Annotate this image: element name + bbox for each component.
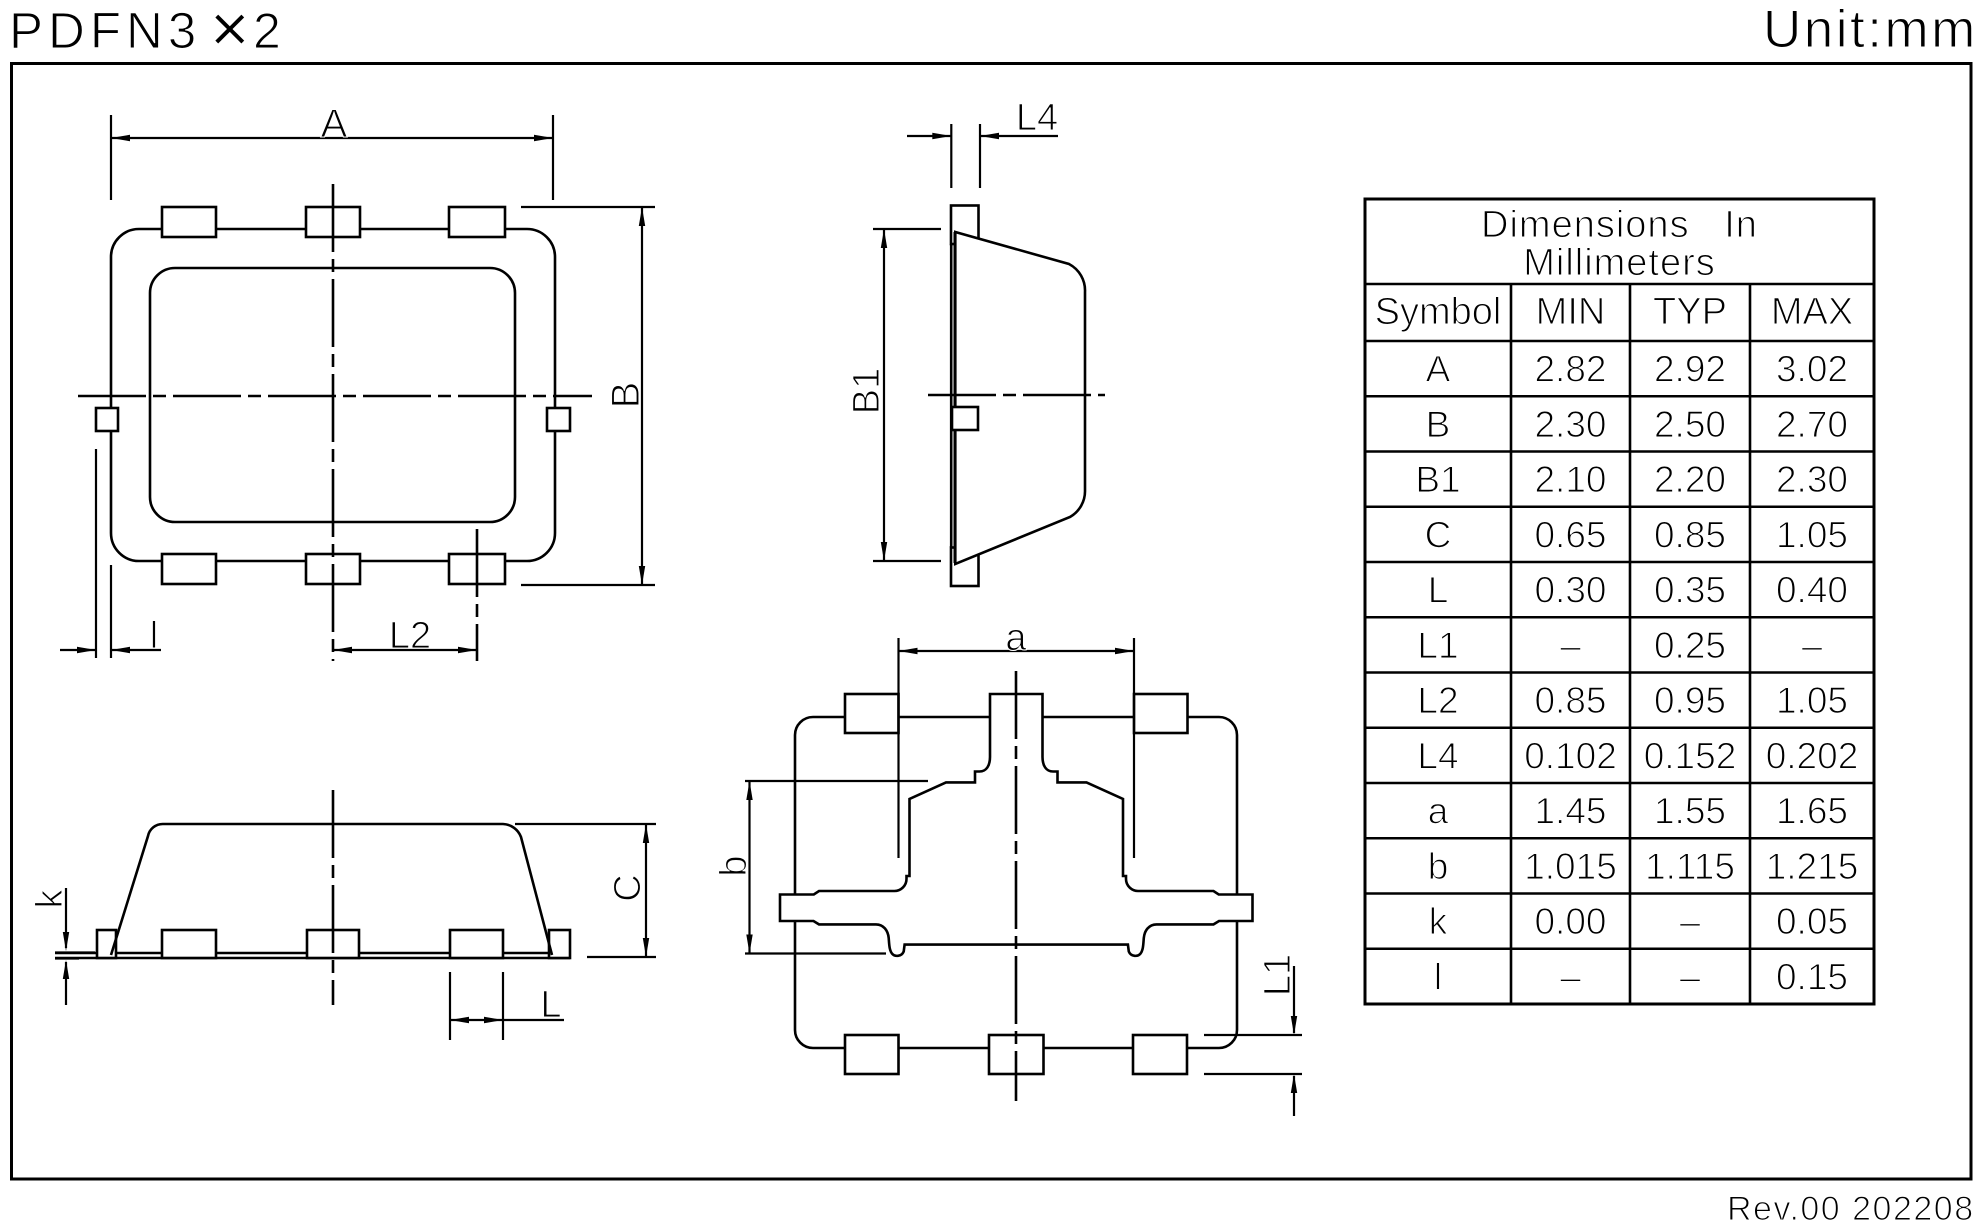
svg-text:0.202: 0.202	[1766, 735, 1859, 776]
svg-text:C: C	[607, 874, 649, 901]
svg-text:0.85: 0.85	[1654, 514, 1726, 555]
svg-text:k: k	[1429, 901, 1448, 942]
svg-text:l: l	[1434, 956, 1442, 997]
svg-text:C: C	[1425, 514, 1452, 555]
svg-text:L1: L1	[1257, 954, 1299, 996]
svg-text:1.05: 1.05	[1776, 514, 1848, 555]
svg-text:Unit:mm: Unit:mm	[1763, 0, 1978, 59]
svg-text:0.25: 0.25	[1654, 625, 1726, 666]
svg-text:L: L	[1428, 570, 1449, 611]
svg-text:1.45: 1.45	[1534, 791, 1606, 832]
svg-text:b: b	[713, 855, 755, 876]
svg-text:2.20: 2.20	[1654, 459, 1726, 500]
svg-text:0.35: 0.35	[1654, 570, 1726, 611]
svg-text:2.70: 2.70	[1776, 404, 1848, 445]
svg-text:1.015: 1.015	[1524, 846, 1617, 887]
svg-text:B: B	[604, 382, 648, 409]
svg-text:–: –	[1802, 625, 1823, 666]
svg-text:0.00: 0.00	[1534, 901, 1606, 942]
svg-text:L2: L2	[1417, 680, 1458, 721]
svg-text:b: b	[1428, 846, 1449, 887]
svg-text:L: L	[540, 984, 561, 1026]
svg-text:MIN: MIN	[1536, 291, 1606, 333]
svg-text:B1: B1	[846, 368, 888, 414]
svg-text:2.30: 2.30	[1776, 459, 1848, 500]
svg-text:0.152: 0.152	[1644, 735, 1737, 776]
svg-text:Millimeters: Millimeters	[1523, 242, 1716, 284]
svg-text:0.30: 0.30	[1534, 570, 1606, 611]
svg-text:L4: L4	[1016, 97, 1058, 139]
svg-text:0.102: 0.102	[1524, 735, 1617, 776]
svg-text:✕: ✕	[208, 2, 252, 60]
svg-text:–: –	[1680, 901, 1701, 942]
svg-text:1.65: 1.65	[1776, 791, 1848, 832]
svg-text:Rev.00 202208: Rev.00 202208	[1727, 1190, 1975, 1226]
svg-text:a: a	[1005, 617, 1027, 659]
svg-text:k: k	[29, 889, 71, 909]
svg-text:0.65: 0.65	[1534, 514, 1606, 555]
svg-text:1.215: 1.215	[1766, 846, 1859, 887]
svg-text:1.55: 1.55	[1654, 791, 1726, 832]
svg-text:2.50: 2.50	[1654, 404, 1726, 445]
svg-text:L2: L2	[389, 615, 431, 657]
svg-text:0.15: 0.15	[1776, 956, 1848, 997]
svg-text:2: 2	[253, 3, 281, 59]
svg-text:0.40: 0.40	[1776, 570, 1848, 611]
svg-text:2.10: 2.10	[1534, 459, 1606, 500]
svg-text:L1: L1	[1417, 625, 1458, 666]
svg-text:0.95: 0.95	[1654, 680, 1726, 721]
svg-text:–: –	[1560, 956, 1581, 997]
svg-text:2.82: 2.82	[1534, 349, 1606, 390]
svg-text:MAX: MAX	[1771, 291, 1853, 333]
svg-text:PDFN3: PDFN3	[9, 2, 201, 59]
svg-text:Symbol: Symbol	[1375, 291, 1502, 333]
svg-text:1.115: 1.115	[1645, 846, 1735, 887]
svg-text:2.92: 2.92	[1654, 349, 1726, 390]
svg-text:–: –	[1680, 956, 1701, 997]
svg-text:B: B	[1426, 404, 1451, 445]
svg-text:TYP: TYP	[1653, 291, 1727, 333]
svg-text:3.02: 3.02	[1776, 349, 1848, 390]
svg-text:l: l	[150, 615, 158, 657]
svg-text:Dimensions In: Dimensions In	[1481, 204, 1758, 246]
svg-text:1.05: 1.05	[1776, 680, 1848, 721]
svg-text:–: –	[1560, 625, 1581, 666]
svg-text:0.85: 0.85	[1534, 680, 1606, 721]
svg-text:A: A	[321, 102, 348, 146]
svg-text:a: a	[1428, 791, 1449, 832]
svg-text:2.30: 2.30	[1534, 404, 1606, 445]
svg-text:0.05: 0.05	[1776, 901, 1848, 942]
svg-text:A: A	[1426, 349, 1451, 390]
svg-text:L4: L4	[1417, 735, 1458, 776]
svg-text:B1: B1	[1415, 459, 1460, 500]
